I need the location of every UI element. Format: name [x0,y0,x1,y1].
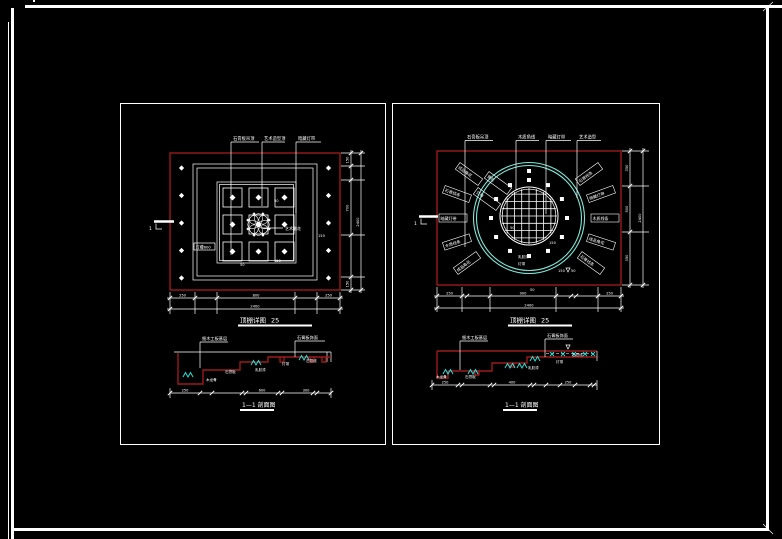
lamp-symbol [251,361,261,366]
svg-text:50: 50 [530,288,535,292]
svg-text:900: 900 [520,292,528,296]
leader-label: 艺术造型 [579,134,597,141]
frame-label: 灯槽600 [196,245,211,250]
left-section-title: 1—1 剖面图 [240,401,276,411]
section-number: 1 [149,226,152,232]
right-plan-dims-right: 350 500 350 2400 [622,148,649,288]
radial-label: 暗藏灯带 [439,214,467,222]
downlight-square [560,235,564,239]
radial-label-text: 暗藏灯带 [441,215,457,221]
leader-label: 细木工板基层 [202,335,227,342]
leader-label: 石膏板饰面 [547,332,568,339]
title-scale: 25 [541,317,549,325]
radial-label: 石膏线条 [577,252,604,275]
svg-text:800: 800 [253,294,261,298]
light-diamond [326,220,331,225]
svg-text:顶棚详图25: 顶棚详图25 [240,316,279,325]
title-underline [503,409,537,411]
title-text: 1—1 剖面图 [505,401,539,409]
svg-text:150: 150 [346,280,350,288]
svg-text:50: 50 [274,199,279,203]
svg-text:250: 250 [179,294,187,298]
svg-text:250: 250 [325,294,333,298]
svg-text:150: 150 [558,269,566,273]
svg-text:木龙骨: 木龙骨 [206,377,217,382]
light-diamond [326,193,331,198]
ceiling-frame-outer [193,164,317,280]
svg-text:石膏线: 石膏线 [572,352,583,357]
svg-text:灯带: 灯带 [282,361,290,366]
viewport-right [393,104,660,445]
downlight-square [560,197,564,201]
title-underline [238,325,312,327]
left-plan-dims-right: 150 700 150 2400 [341,150,365,293]
svg-text:250: 250 [182,389,190,393]
right-section-detail: 细木工板基层 石膏板饰面 木龙骨 石膏板 乳胶漆 灯带 石膏线 250 400 … [430,332,597,411]
svg-text:灯带: 灯带 [518,261,526,266]
radial-label: 暗藏灯带 [586,185,615,202]
radial-label: 成品角花 [586,234,615,250]
svg-text:2400: 2400 [638,213,642,223]
downlight-square [494,235,498,239]
svg-text:顶棚详图25: 顶棚详图25 [510,316,549,325]
svg-text:150: 150 [346,156,350,164]
left-section-dims: 250 600 300 [168,388,333,398]
light-diamond [179,248,184,253]
svg-text:350: 350 [625,254,629,262]
downlight-square [546,183,550,187]
light-diamond [230,222,236,228]
radial-label: 成品角花 [453,252,480,275]
downlight-square [527,178,531,182]
svg-text:150: 150 [318,234,326,238]
radial-label: 石膏线条 [442,185,471,202]
svg-text:2400: 2400 [524,304,534,308]
leader-label: 石膏板饰面 [297,334,318,341]
svg-text:木龙骨: 木龙骨 [436,374,447,379]
lattice-grid [499,186,559,246]
downlight-square [565,216,569,220]
radial-label: 木质线条 [442,234,471,250]
light-diamond [179,165,184,170]
title-underline [508,325,572,327]
downlight-square [489,216,493,220]
right-section-dims: 250 400 250 [430,380,597,390]
svg-text:250: 250 [442,381,450,385]
svg-text:150: 150 [274,259,282,263]
right-ceiling-plan: 成品角花石膏线条暗藏灯带木质线条成品角花石膏线条暗藏灯带木质线条成品角花石膏线条… [414,134,649,327]
svg-text:600: 600 [259,389,267,393]
leader-label: 暗藏灯带 [548,134,566,141]
svg-text:350: 350 [625,164,629,172]
title-scale: 25 [271,317,279,325]
light-diamond [230,195,236,201]
svg-text:50: 50 [240,263,245,267]
leader-label: 石膏板吊顶 [233,135,255,142]
light-diamond [230,249,236,255]
lamp-symbol [468,370,478,375]
center-ornament [246,212,270,236]
lamp-symbol [183,373,193,378]
level-mark [566,345,570,349]
svg-text:2400: 2400 [356,217,360,227]
svg-text:250: 250 [565,381,573,385]
leader-label: 细木工板基层 [462,334,487,341]
svg-text:乳胶漆: 乳胶漆 [518,254,529,259]
svg-text:2400: 2400 [250,305,260,309]
svg-text:灯带: 灯带 [556,359,564,364]
frame-corner-mark [33,0,35,2]
svg-text:250: 250 [446,292,454,296]
title-text: 顶棚详图 [510,316,536,325]
svg-text:300: 300 [303,389,311,393]
radial-label: 木质线条 [591,214,619,222]
svg-text:石膏板: 石膏板 [465,374,476,379]
light-diamond [256,249,262,255]
cad-drawing-area[interactable]: 石膏板吊顶 艺术造型顶 暗藏灯带 艺术雕花 灯槽600 1 50 150 50 … [0,0,782,539]
title-underline [240,409,274,411]
light-diamond [282,249,288,255]
ornament-label: 艺术雕花 [285,225,301,231]
svg-text:石膏板: 石膏板 [225,369,236,374]
svg-text:50: 50 [510,226,515,230]
leader-label: 石膏板吊顶 [467,134,489,141]
leader-label: 暗藏灯带 [298,135,316,142]
svg-text:700: 700 [346,204,350,212]
svg-text:400: 400 [509,381,517,385]
left-plan-dims-bottom: 250 800 250 2400 [167,292,343,314]
insulation-symbols [183,356,309,378]
svg-text:乳胶漆: 乳胶漆 [528,365,539,370]
section-number: 1 [414,221,417,227]
title-text: 1—1 剖面图 [242,401,276,409]
svg-text:石膏线: 石膏线 [306,358,317,363]
svg-text:250: 250 [606,292,614,296]
left-plan-title: 顶棚详图25 [238,316,312,327]
light-diamond [179,220,184,225]
right-section-title: 1—1 剖面图 [503,401,539,411]
radial-label: 石膏线条 [575,163,602,186]
svg-text:乳胶漆: 乳胶漆 [255,367,266,372]
lamp-symbol [517,364,527,369]
title-text: 顶棚详图 [240,316,266,325]
downlight-square [546,249,550,253]
leader-label: 艺术造型顶 [264,135,286,142]
radial-label: 成品角花 [455,163,482,186]
svg-text:500: 500 [625,205,629,213]
coffer-grid-inner [220,185,294,261]
radial-label-text: 木质线条 [593,215,609,221]
light-diamond [326,275,331,280]
right-plan-dims-bottom: 250 900 250 2400 [434,287,624,312]
svg-text:50: 50 [571,269,576,273]
sheet-border [9,0,782,539]
left-ceiling-plan: 石膏板吊顶 艺术造型顶 暗藏灯带 艺术雕花 灯槽600 1 50 150 50 … [149,135,365,327]
section-cut-marker: 1 [414,217,438,228]
downlight-square [508,249,512,253]
left-section-detail: 细木工板基层 石膏板饰面 木龙骨 石膏板 乳胶漆 灯带 石膏线 250 600 … [168,334,333,411]
svg-text:150: 150 [549,241,557,245]
right-section-labels: 木龙骨 石膏板 乳胶漆 灯带 石膏线 [436,345,583,379]
light-diamond [179,275,184,280]
light-diamond [282,195,288,201]
light-diamond [256,195,262,201]
leader-label: 木质角线 [518,134,536,141]
light-diamond [326,248,331,253]
right-plan-title: 顶棚详图25 [508,316,572,327]
light-diamond [179,193,184,198]
light-diamond [326,165,331,170]
